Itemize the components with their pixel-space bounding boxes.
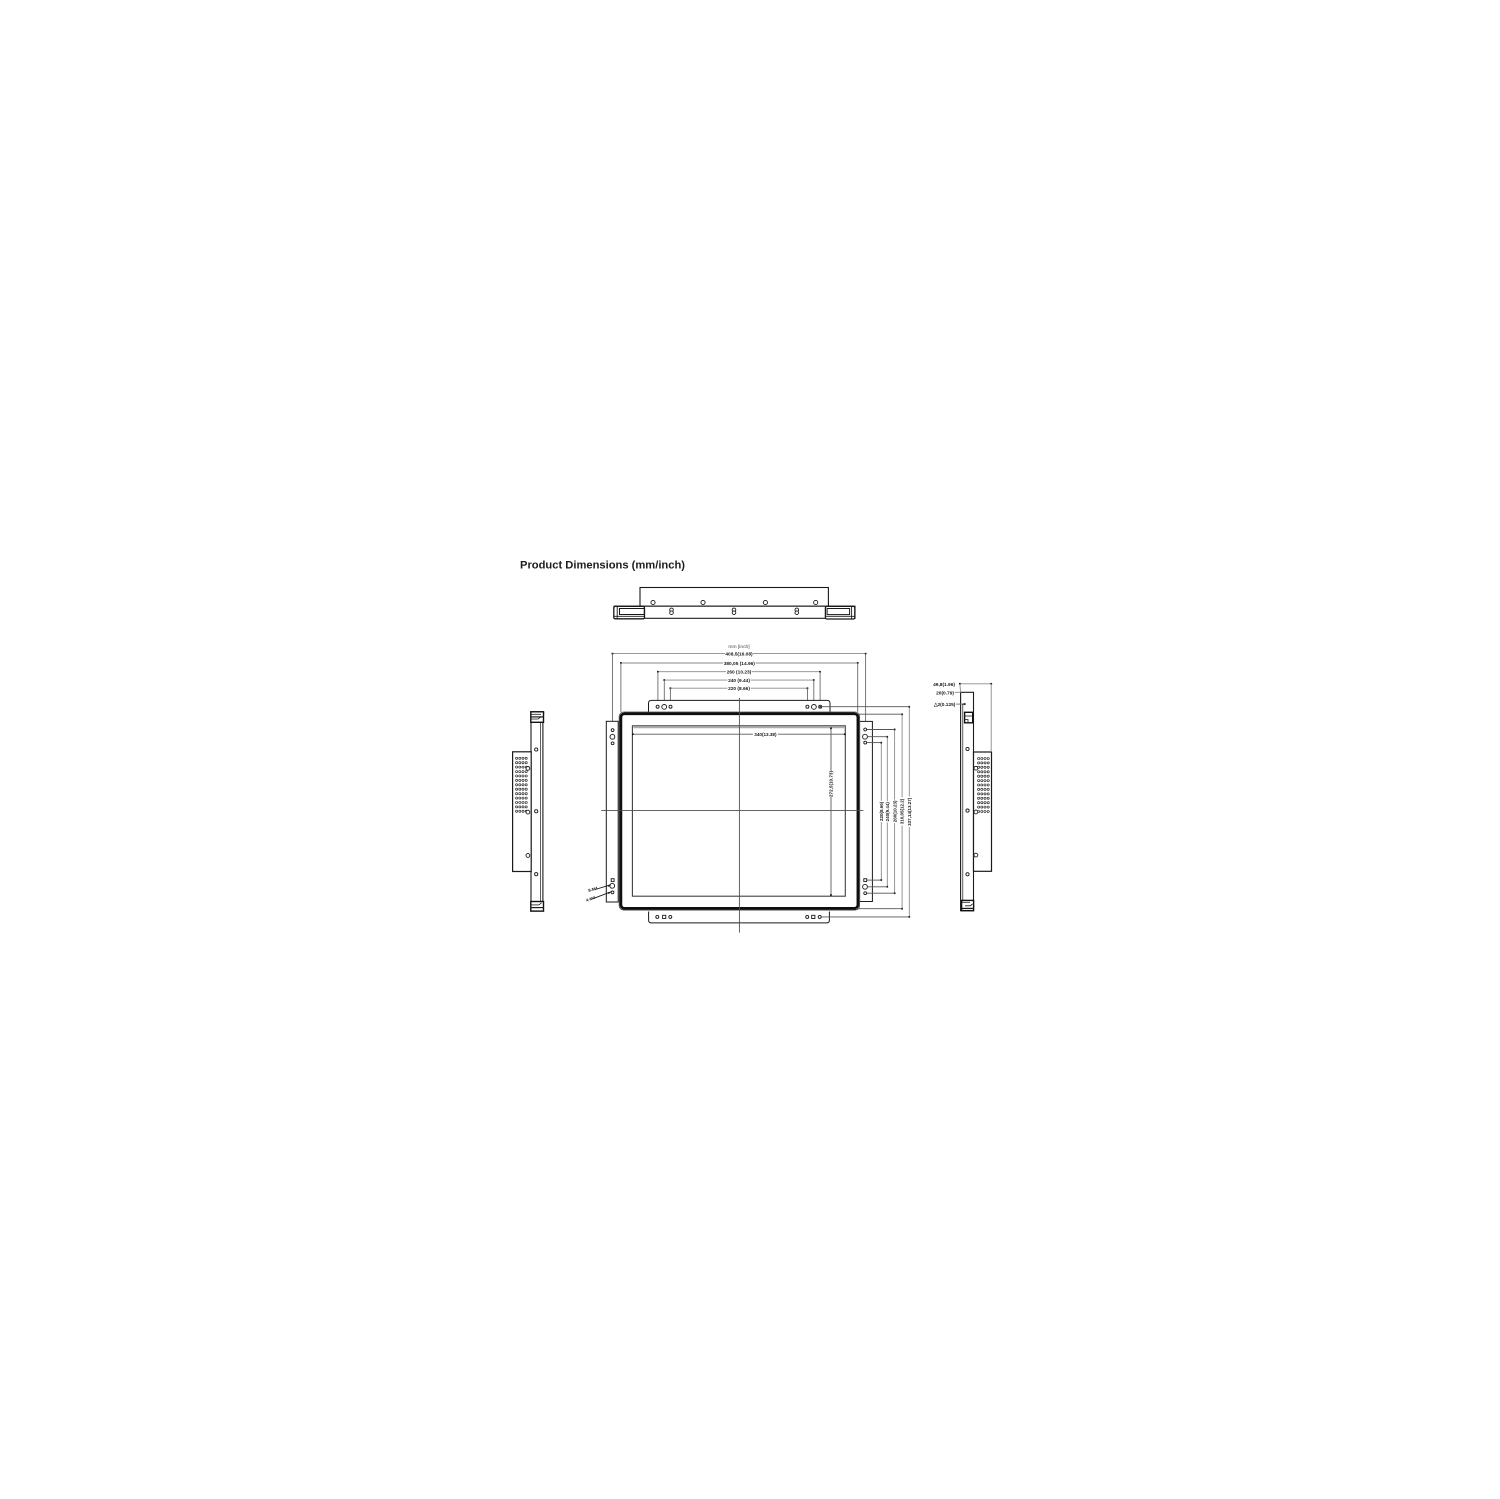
- svg-text:260(10.23): 260(10.23): [892, 800, 897, 822]
- svg-text:Product Dimensions (mm/inch): Product Dimensions (mm/inch): [520, 559, 685, 571]
- svg-text:20(0.79): 20(0.79): [936, 690, 954, 696]
- svg-text:49,8(1.96): 49,8(1.96): [933, 682, 955, 688]
- svg-text:272,5(10.73): 272,5(10.73): [829, 771, 834, 798]
- svg-text:340(13.38): 340(13.38): [754, 732, 777, 737]
- svg-text:260 (10.23): 260 (10.23): [727, 670, 752, 676]
- svg-text:220(8.66): 220(8.66): [879, 801, 884, 821]
- svg-text:310,05(12.2): 310,05(12.2): [900, 798, 905, 824]
- svg-text:220 (8.66): 220 (8.66): [728, 686, 750, 692]
- svg-text:mm [inch]: mm [inch]: [728, 644, 750, 650]
- svg-text:337,14(13.27): 337,14(13.27): [907, 797, 912, 826]
- svg-text:380,05 (14.96): 380,05 (14.96): [724, 661, 756, 667]
- svg-text:240 (9.44): 240 (9.44): [728, 678, 750, 684]
- svg-text:240(9.44): 240(9.44): [885, 802, 890, 822]
- svg-text:△2(0.125): △2(0.125): [933, 702, 956, 708]
- svg-text:408,5(16.08): 408,5(16.08): [725, 651, 753, 657]
